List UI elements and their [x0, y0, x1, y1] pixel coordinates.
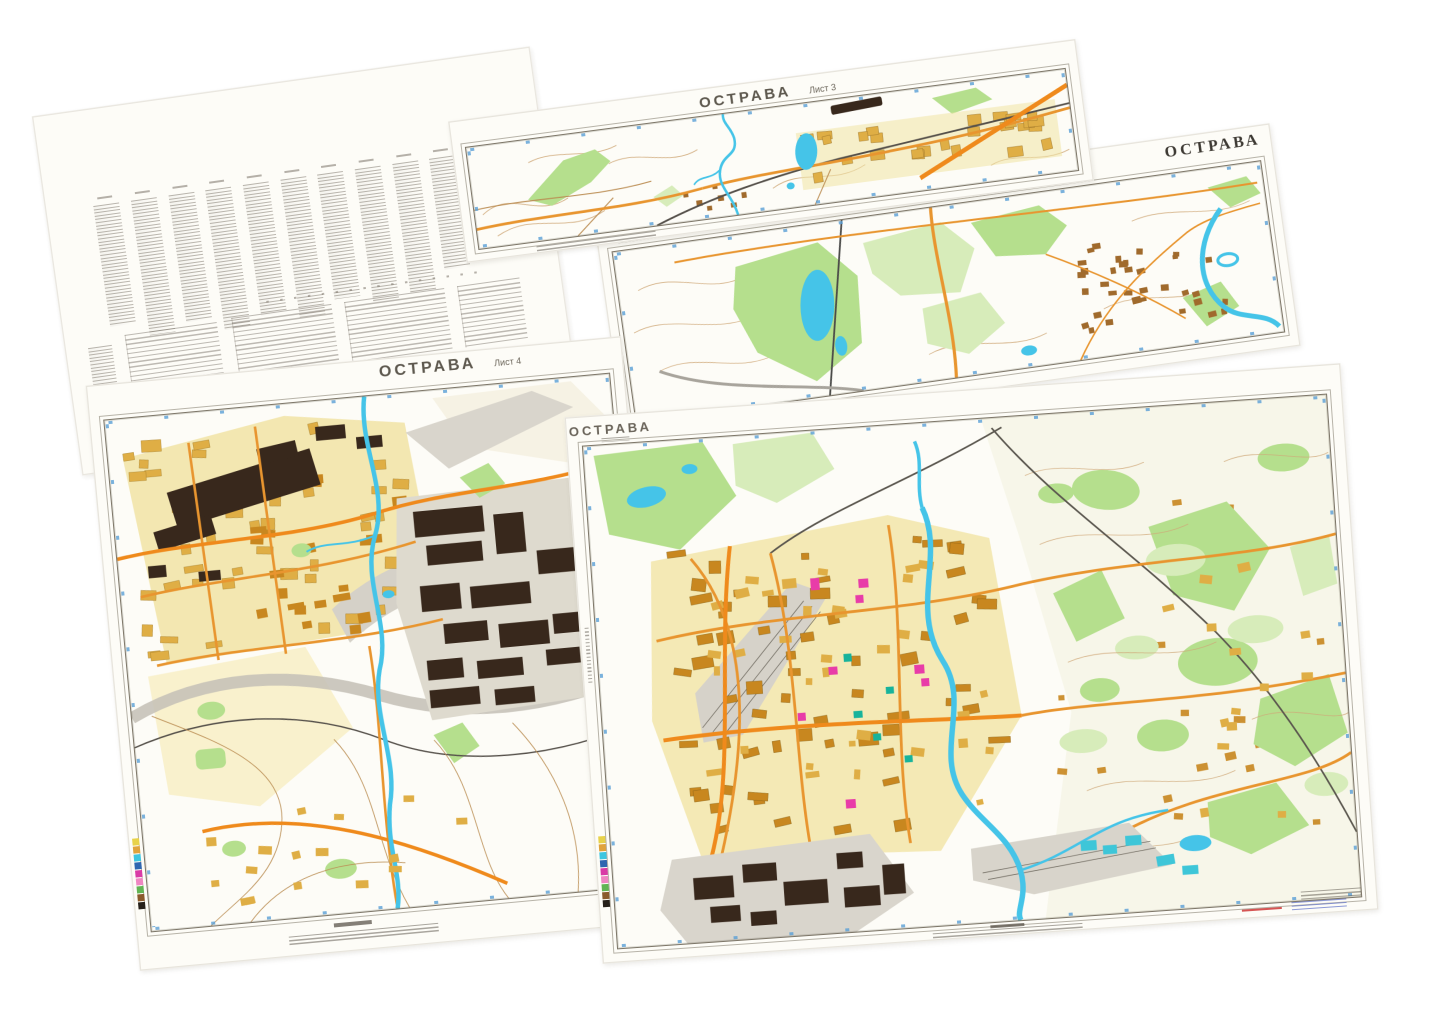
- legend-section: [33, 48, 528, 118]
- sheet-title: ОСТРАВА: [378, 355, 477, 381]
- index-column: [355, 166, 399, 302]
- sheet-number-label: Лист 4: [494, 356, 522, 368]
- legend-group: [457, 277, 528, 347]
- margin-note-red-line: [1242, 907, 1282, 912]
- map-artwork-city: [583, 395, 1361, 949]
- sheet-city-centre: ОСТРАВА: [565, 364, 1378, 964]
- sheet-title-row: ОСТРАВА: [568, 419, 652, 440]
- index-column: [131, 197, 176, 335]
- index-column: [392, 160, 436, 292]
- sheet-title-row: ОСТРАВА: [1164, 131, 1262, 162]
- map-frame: [582, 394, 1362, 950]
- scanned-map-collage: ОСТРАВАЛист 3: [0, 0, 1445, 1030]
- index-text-columns: [33, 48, 528, 118]
- index-column: [169, 192, 213, 322]
- margin-note: [289, 923, 439, 948]
- scale-note: [334, 920, 372, 927]
- sheet-number-label: Лист 3: [809, 82, 837, 95]
- sheet-title: ОСТРАВА: [568, 419, 652, 440]
- margin-note-vertical: [585, 628, 593, 683]
- sheet-title: ОСТРАВА: [1164, 131, 1262, 161]
- color-calibration-strip: [598, 836, 610, 907]
- index-column: [243, 181, 287, 315]
- index-column: [317, 171, 360, 299]
- index-column: [93, 202, 136, 326]
- index-column: [205, 187, 250, 330]
- sheet-number-smudge: [601, 436, 629, 442]
